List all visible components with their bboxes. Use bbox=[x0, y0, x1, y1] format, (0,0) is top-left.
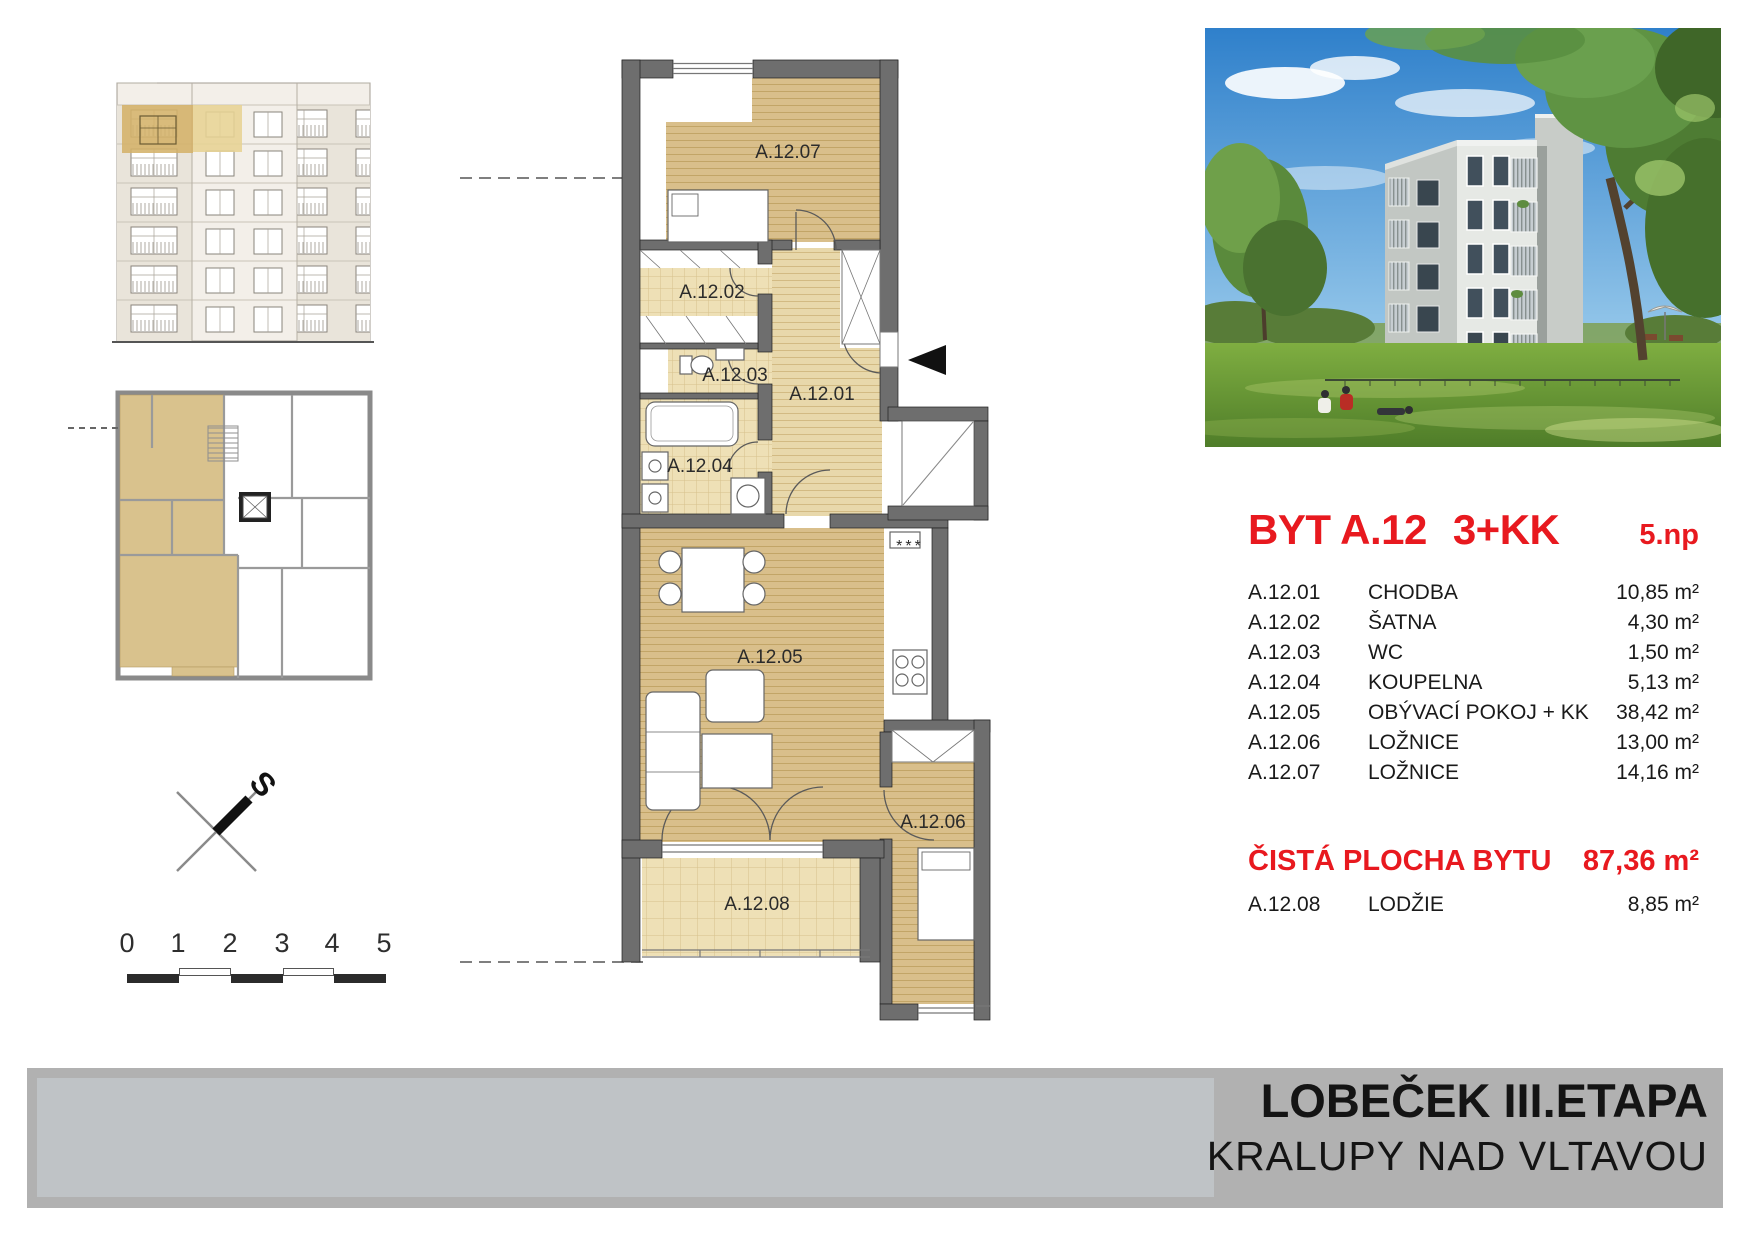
room-name: LODŽIE bbox=[1368, 893, 1628, 917]
building-photo bbox=[1205, 28, 1721, 447]
scale-segment bbox=[231, 974, 283, 983]
plan-label-05: A.12.05 bbox=[737, 647, 803, 668]
total-area-value: 87,36 m² bbox=[1583, 845, 1699, 878]
plan-label-03: A.12.03 bbox=[702, 365, 768, 386]
room-code: A.12.02 bbox=[1248, 611, 1368, 635]
footer-panel bbox=[37, 1078, 1214, 1197]
room-name: WC bbox=[1368, 641, 1628, 665]
unit-title: BYT A.12 bbox=[1248, 506, 1427, 554]
room-area: 5,13 m² bbox=[1628, 671, 1699, 695]
scale-segment bbox=[334, 974, 386, 983]
compass: S bbox=[150, 752, 280, 882]
room-name: KOUPELNA bbox=[1368, 671, 1628, 695]
scale-tick: 1 bbox=[163, 928, 193, 959]
plan-label-07: A.12.07 bbox=[755, 142, 821, 163]
kitchen-marker: *** bbox=[896, 538, 924, 555]
keyplan-reference-dash bbox=[68, 427, 118, 429]
total-area-label: ČISTÁ PLOCHA BYTU bbox=[1248, 845, 1551, 878]
room-name: LOŽNICE bbox=[1368, 731, 1616, 755]
room-name: CHODBA bbox=[1368, 581, 1616, 605]
entrance-arrow-icon bbox=[908, 345, 946, 375]
footer: LOBEČEK III.ETAPA KRALUPY NAD VLTAVOU bbox=[1100, 1072, 1708, 1182]
room-area: 8,85 m² bbox=[1628, 893, 1699, 917]
room-code: A.12.04 bbox=[1248, 671, 1368, 695]
total-area-row: ČISTÁ PLOCHA BYTU 87,36 m² bbox=[1205, 842, 1721, 880]
room-code: A.12.06 bbox=[1248, 731, 1368, 755]
table-row: A.12.04 KOUPELNA 5,13 m² bbox=[1248, 668, 1699, 698]
table-row: A.12.01 CHODBA 10,85 m² bbox=[1248, 578, 1699, 608]
room-area: 13,00 m² bbox=[1616, 731, 1699, 755]
room-code: A.12.03 bbox=[1248, 641, 1368, 665]
room-name: ŠATNA bbox=[1368, 611, 1628, 635]
room-name: LOŽNICE bbox=[1368, 761, 1616, 785]
room-floor-chodba bbox=[772, 248, 840, 348]
floor-plan: A.12.07 A.12.02 A.12.03 A.12.01 A.12.04 … bbox=[440, 20, 1000, 1030]
scale-tick: 0 bbox=[112, 928, 142, 959]
plan-label-01: A.12.01 bbox=[789, 384, 855, 405]
project-name: LOBEČEK III.ETAPA bbox=[1100, 1072, 1708, 1130]
plan-label-08: A.12.08 bbox=[724, 894, 790, 915]
scale-segment bbox=[127, 974, 179, 983]
scale-tick: 2 bbox=[215, 928, 245, 959]
building-elevation-drawing bbox=[110, 78, 376, 350]
room-area: 1,50 m² bbox=[1628, 641, 1699, 665]
room-area: 38,42 m² bbox=[1616, 701, 1699, 725]
plan-label-06: A.12.06 bbox=[900, 812, 966, 833]
scale-segment bbox=[283, 968, 334, 976]
room-code: A.12.01 bbox=[1248, 581, 1368, 605]
keyplan-drawing bbox=[112, 388, 376, 686]
unit-title-row: BYT A.12 3+KK 5.np bbox=[1205, 506, 1721, 554]
room-table: A.12.01 CHODBA 10,85 m² A.12.02 ŠATNA 4,… bbox=[1205, 578, 1721, 788]
scale-segment bbox=[179, 968, 231, 976]
table-row: A.12.07 LOŽNICE 14,16 m² bbox=[1248, 758, 1699, 788]
apartment-brochure-page: S 0 1 2 3 4 5 bbox=[0, 0, 1753, 1238]
table-row: A.12.06 LOŽNICE 13,00 m² bbox=[1248, 728, 1699, 758]
loggia-row: A.12.08 LODŽIE 8,85 m² bbox=[1205, 890, 1721, 920]
room-code: A.12.05 bbox=[1248, 701, 1368, 725]
plan-label-02: A.12.02 bbox=[679, 282, 745, 303]
scale-tick: 4 bbox=[317, 928, 347, 959]
project-city: KRALUPY NAD VLTAVOU bbox=[1100, 1130, 1708, 1182]
table-row: A.12.03 WC 1,50 m² bbox=[1248, 638, 1699, 668]
plan-label-04: A.12.04 bbox=[667, 456, 733, 477]
room-code: A.12.08 bbox=[1248, 893, 1368, 917]
room-area: 14,16 m² bbox=[1616, 761, 1699, 785]
scale-tick: 5 bbox=[369, 928, 399, 959]
table-row: A.12.05 OBÝVACÍ POKOJ + KK 38,42 m² bbox=[1248, 698, 1699, 728]
room-code: A.12.07 bbox=[1248, 761, 1368, 785]
table-row: A.12.02 ŠATNA 4,30 m² bbox=[1248, 608, 1699, 638]
room-area: 4,30 m² bbox=[1628, 611, 1699, 635]
unit-layout: 3+KK bbox=[1453, 506, 1560, 554]
scale-bar: 0 1 2 3 4 5 bbox=[112, 928, 412, 990]
room-name: OBÝVACÍ POKOJ + KK bbox=[1368, 701, 1616, 725]
scale-tick: 3 bbox=[267, 928, 297, 959]
unit-floor: 5.np bbox=[1639, 519, 1699, 552]
room-area: 10,85 m² bbox=[1616, 581, 1699, 605]
